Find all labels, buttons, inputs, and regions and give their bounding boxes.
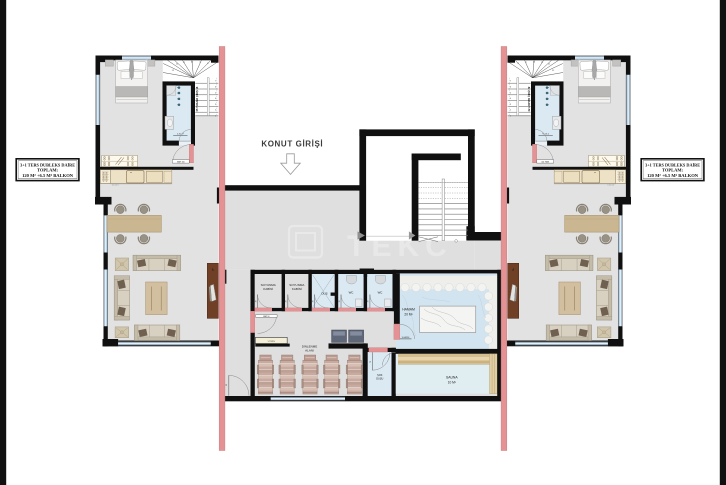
- svg-text:90: 90: [226, 384, 228, 386]
- svg-text:70: 70: [312, 301, 314, 303]
- svg-text:120 M² +6.5 M² BALKON: 120 M² +6.5 M² BALKON: [22, 173, 74, 178]
- svg-text:KAPI 90: KAPI 90: [263, 315, 269, 318]
- svg-text:20 M²: 20 M²: [404, 312, 412, 316]
- svg-text:KAPI 100: KAPI 100: [541, 160, 549, 163]
- svg-text:05 YUKARI ÇIKIŞ 16: 05 YUKARI ÇIKIŞ 16: [527, 86, 531, 111]
- svg-text:KAPI 100: KAPI 100: [177, 160, 185, 163]
- svg-text:DUŞU: DUŞU: [376, 378, 383, 381]
- svg-text:KABİNİ: KABİNİ: [292, 286, 302, 291]
- svg-text:HAMAM: HAMAM: [402, 308, 415, 312]
- svg-text:x x x x x: x x x x x: [607, 184, 614, 186]
- svg-text:70: 70: [286, 301, 288, 303]
- svg-text:70: 70: [255, 301, 257, 303]
- svg-text:VİTRİN: VİTRİN: [268, 340, 276, 343]
- svg-text:ALANI: ALANI: [305, 349, 314, 353]
- svg-text:70: 70: [370, 361, 372, 363]
- svg-text:WC: WC: [349, 291, 354, 295]
- svg-text:x x x x x: x x x x x: [112, 184, 119, 186]
- svg-text:KONUT GİRİŞİ: KONUT GİRİŞİ: [261, 140, 323, 149]
- svg-text:10 M²: 10 M²: [448, 380, 456, 384]
- svg-text:120 M² +6.5 M² BALKON: 120 M² +6.5 M² BALKON: [647, 173, 699, 178]
- svg-text:70: 70: [339, 301, 341, 303]
- svg-text:05 YUKARI ÇIKIŞ 16: 05 YUKARI ÇIKIŞ 16: [195, 86, 199, 111]
- svg-text:DUŞ: DUŞ: [321, 291, 327, 295]
- svg-text:70: 70: [368, 301, 370, 303]
- svg-text:WC: WC: [378, 291, 383, 295]
- svg-text:KABİNİ: KABİNİ: [263, 286, 273, 291]
- svg-text:S.KAPISI: S.KAPISI: [402, 336, 410, 339]
- svg-text:SAUNA: SAUNA: [446, 376, 458, 380]
